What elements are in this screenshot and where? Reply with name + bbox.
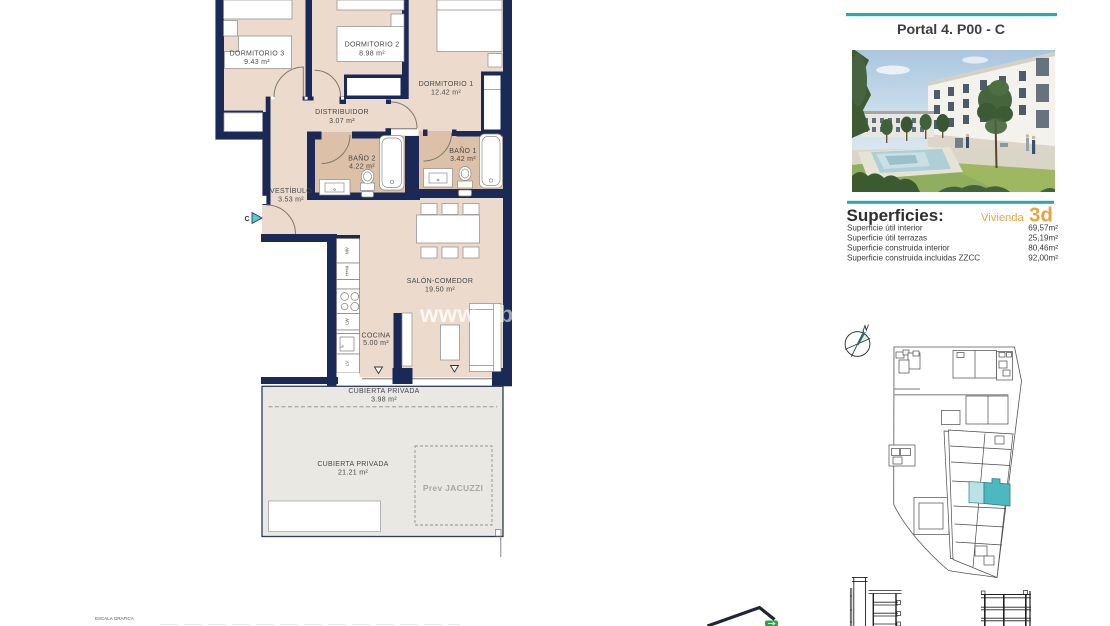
- svg-text:12.42 m²: 12.42 m²: [431, 90, 461, 97]
- svg-text:80,46m²: 80,46m²: [1028, 243, 1058, 252]
- svg-text:LW: LW: [345, 318, 350, 325]
- svg-text:bl: bl: [499, 301, 520, 327]
- svg-text:DISTRIBUIDOR: DISTRIBUIDOR: [315, 109, 369, 116]
- svg-text:Prev JACUZZI: Prev JACUZZI: [423, 483, 483, 493]
- svg-text:BAÑO 1: BAÑO 1: [449, 146, 476, 155]
- svg-text:25,19m²: 25,19m²: [1028, 233, 1058, 242]
- svg-text:21.21 m²: 21.21 m²: [338, 470, 368, 477]
- svg-text:69,57m²: 69,57m²: [1028, 224, 1058, 233]
- svg-text:3.42 m²: 3.42 m²: [450, 156, 476, 163]
- svg-text:3.98 m²: 3.98 m²: [371, 397, 397, 404]
- svg-text:C: C: [244, 216, 249, 223]
- svg-text:Superficies:: Superficies:: [847, 206, 944, 225]
- svg-text:VESTÍBULO: VESTÍBULO: [270, 186, 312, 195]
- svg-text:Superficie construida incluida: Superficie construida incluidas ZZCC: [847, 253, 980, 262]
- svg-text:DORMITORIO 1: DORMITORIO 1: [419, 81, 474, 88]
- svg-text:SALÓN-COMEDOR: SALÓN-COMEDOR: [407, 276, 474, 285]
- svg-text:DORMITORIO 3: DORMITORIO 3: [230, 51, 285, 58]
- svg-text:19.50 m²: 19.50 m²: [425, 287, 455, 294]
- svg-text:Superficie útil terrazas: Superficie útil terrazas: [847, 233, 927, 242]
- svg-text:H+M: H+M: [345, 266, 350, 276]
- svg-text:CUBIERTA PRIVADA: CUBIERTA PRIVADA: [348, 388, 419, 395]
- svg-text:MV: MV: [345, 246, 350, 254]
- svg-text:4.22 m²: 4.22 m²: [349, 164, 375, 171]
- svg-text:ESCALA GRAFICA: ESCALA GRAFICA: [95, 616, 134, 621]
- svg-text:3.07 m²: 3.07 m²: [329, 118, 355, 125]
- svg-text:92,00m²: 92,00m²: [1028, 253, 1058, 262]
- svg-text:3.53 m²: 3.53 m²: [278, 197, 304, 204]
- svg-text:www: www: [419, 301, 477, 327]
- svg-text:5.00 m²: 5.00 m²: [363, 340, 389, 347]
- svg-text:CUBIERTA PRIVADA: CUBIERTA PRIVADA: [317, 461, 388, 468]
- svg-text:Portal 4. P00 - C: Portal 4. P00 - C: [897, 22, 1005, 38]
- svg-text:Superficie útil interior: Superficie útil interior: [847, 224, 923, 233]
- svg-text:Vivienda: Vivienda: [981, 212, 1024, 224]
- svg-text:DORMITORIO 2: DORMITORIO 2: [345, 42, 400, 49]
- svg-text:BAÑO 2: BAÑO 2: [348, 154, 375, 163]
- svg-text:9.43 m²: 9.43 m²: [244, 59, 270, 66]
- svg-text:8.98 m²: 8.98 m²: [359, 51, 385, 58]
- svg-text:COCINA: COCINA: [361, 333, 390, 340]
- svg-text:Superficie construida interior: Superficie construida interior: [847, 243, 950, 252]
